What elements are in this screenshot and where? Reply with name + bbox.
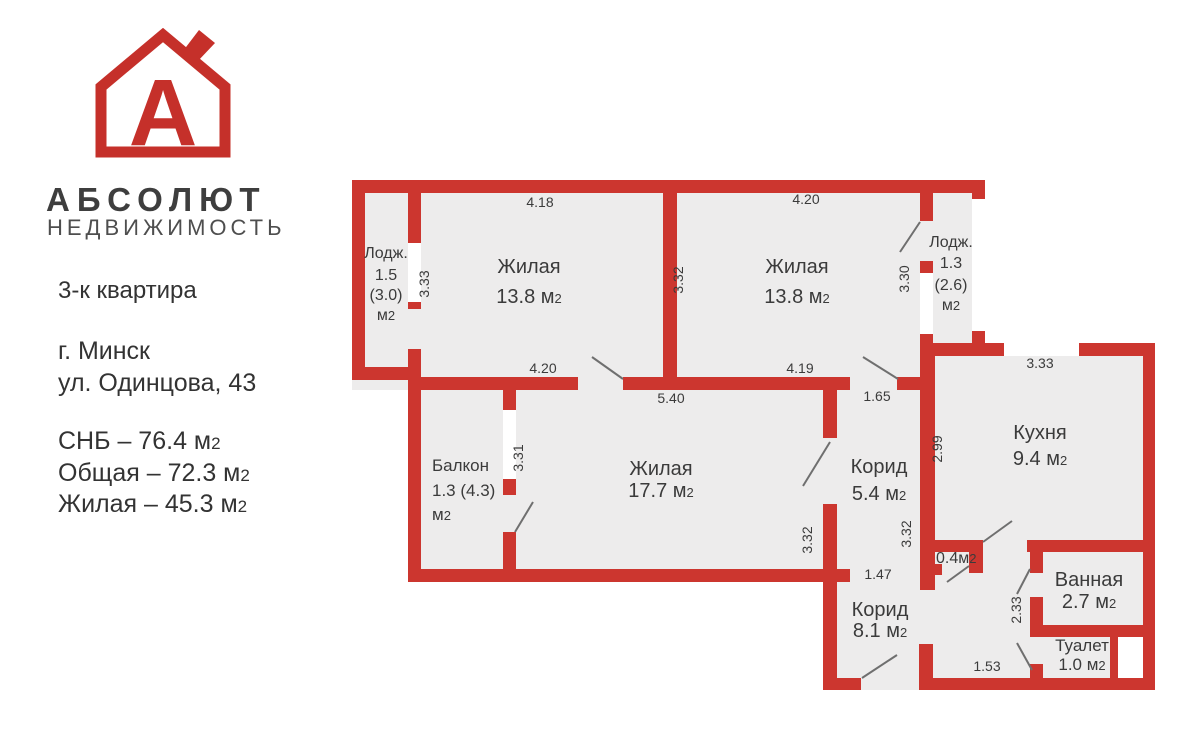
wall-bathroom-left-a <box>1030 552 1043 573</box>
label-loggia-right-unit: м2 <box>942 297 960 314</box>
wall-right-outer <box>1143 343 1155 690</box>
label-loggia-right-1: Лодж. <box>929 234 973 251</box>
dim-kitchen-left-height: 2.99 <box>929 435 945 462</box>
dim-room2-right-height: 3.30 <box>896 265 912 292</box>
label-loggia-right-unit-m: м <box>942 297 953 314</box>
label-corridor1-area-2: 2 <box>899 488 906 503</box>
dim-corridor1-top: 1.65 <box>863 388 890 404</box>
label-room2-area: 13.8 м2 <box>764 286 829 308</box>
label-toilet-area: 1.0 м2 <box>1058 655 1105 674</box>
dim-bathroom-height: 2.33 <box>1008 596 1024 623</box>
label-bathroom-area-2: 2 <box>1109 596 1116 611</box>
wall-room1-bottom-a <box>408 377 578 390</box>
dim-balcony-height: 3.31 <box>510 444 526 471</box>
label-loggia-left-3: (3.0) <box>370 287 403 304</box>
wall-loggia-right-outer-top <box>972 180 985 199</box>
label-room3-area-2: 2 <box>687 485 694 500</box>
wall-room3-right-bottom <box>823 504 837 690</box>
dim-rooms-mid-height: 3.32 <box>670 266 686 293</box>
wall-balcony-sill <box>503 479 516 495</box>
dim-room3-top: 5.40 <box>657 390 684 406</box>
wall-loggia-right-partition-top <box>920 180 933 221</box>
label-closet-area-value: 0.4м <box>936 550 969 567</box>
dim-room1-bottom: 4.20 <box>529 360 556 376</box>
label-corridor1-area-value: 5.4 м <box>852 483 899 505</box>
label-closet-area-2: 2 <box>969 551 976 566</box>
label-loggia-right-unit-2: 2 <box>953 298 960 313</box>
label-room2-area-value: 13.8 м <box>764 286 822 308</box>
window-loggia-right-outer <box>972 199 985 331</box>
wall-niche-left <box>1110 637 1118 678</box>
label-bathroom-area: 2.7 м2 <box>1062 591 1116 613</box>
label-room2-area-2: 2 <box>823 291 830 306</box>
label-room3-name: Жилая <box>629 458 692 480</box>
label-kitchen-area-2: 2 <box>1060 453 1067 468</box>
label-closet-area: 0.4м2 <box>936 550 976 567</box>
wall-loggia-left-sill <box>408 302 421 309</box>
label-room1-area: 13.8 м2 <box>496 286 561 308</box>
label-toilet-area-value: 1.0 м <box>1058 655 1098 674</box>
label-room3-area-value: 17.7 м <box>628 480 686 502</box>
label-kitchen-area: 9.4 м2 <box>1013 448 1067 470</box>
wall-room1-bottom-b <box>623 377 850 390</box>
label-kitchen-name: Кухня <box>1013 422 1067 444</box>
label-corridor1-area: 5.4 м2 <box>852 483 906 505</box>
wall-mid-left-outer <box>408 380 421 582</box>
label-toilet-area-2: 2 <box>1098 658 1105 673</box>
label-loggia-right-2: 1.3 <box>940 255 962 272</box>
label-room1-area-value: 13.8 м <box>496 286 554 308</box>
label-room2-name: Жилая <box>765 256 828 278</box>
wall-mid-bottom <box>408 569 850 582</box>
wall-balcony-partition-top <box>503 389 516 410</box>
label-corridor2-area-2: 2 <box>900 625 907 640</box>
label-room1-name: Жилая <box>497 256 560 278</box>
dim-room3-right-height: 3.32 <box>799 526 815 553</box>
label-bathroom-name: Ванная <box>1055 569 1124 591</box>
wall-bottom-outer-b <box>919 678 1155 690</box>
wall-loggia-right-sill <box>920 261 933 273</box>
dim-loggia-left-height: 3.33 <box>416 270 432 297</box>
dim-room2-bottom: 4.19 <box>786 360 813 376</box>
label-corridor2-name: Корид <box>852 599 909 621</box>
label-balcony-unit-2: 2 <box>444 508 451 523</box>
wall-loggia-left-partition-top <box>408 180 421 243</box>
floor-plan: Лодж. 1.5 (3.0) м2 Жилая 13.8 м2 Жилая 1… <box>0 0 1199 729</box>
wall-loggia-left-partition-bottom <box>408 349 421 380</box>
label-balcony-2: 1.3 (4.3) <box>432 481 495 500</box>
dim-corridor1-bottom: 1.47 <box>864 566 891 582</box>
window-loggia-right-inner <box>920 273 933 334</box>
label-room1-area-2: 2 <box>555 291 562 306</box>
label-corridor2-area-value: 8.1 м <box>853 620 900 642</box>
dim-room2-top: 4.20 <box>792 191 819 207</box>
label-balcony-unit-m: м <box>432 505 444 524</box>
label-corridor1-name: Корид <box>851 456 908 478</box>
label-kitchen-area-value: 9.4 м <box>1013 448 1060 470</box>
wall-left-outer <box>352 180 365 380</box>
label-loggia-left-2: 1.5 <box>375 267 397 284</box>
label-loggia-right-3: (2.6) <box>935 277 968 294</box>
wall-balcony-partition-bottom <box>503 532 516 569</box>
label-loggia-left-unit-2: 2 <box>388 308 395 323</box>
label-balcony-unit: м2 <box>432 505 451 524</box>
wall-kitchen-left <box>920 343 935 590</box>
label-corridor2-area: 8.1 м2 <box>853 620 907 642</box>
niche-shaft <box>1118 637 1143 678</box>
wall-entrance-stub <box>919 644 933 690</box>
label-toilet-name: Туалет <box>1055 636 1109 655</box>
wall-room3-right-top <box>823 389 837 438</box>
label-bathroom-area-value: 2.7 м <box>1062 591 1109 613</box>
dim-kitchen-top: 3.33 <box>1026 355 1053 371</box>
label-loggia-left-unit: м2 <box>377 307 395 324</box>
dim-corridor1-right-height: 3.32 <box>898 520 914 547</box>
wall-bottom-outer-a <box>823 678 861 690</box>
dim-hall-bottom: 1.53 <box>973 658 1000 674</box>
label-loggia-left-1: Лодж. <box>364 245 408 262</box>
wall-room2-bottom-b <box>897 377 921 390</box>
label-balcony-1: Балкон <box>432 456 489 475</box>
flyer: А АБСОЛЮТ НЕДВИЖИМОСТЬ 3-к квартира г. М… <box>0 0 1199 729</box>
dim-room1-top: 4.18 <box>526 194 553 210</box>
wall-kitchen-top-a <box>920 343 1004 356</box>
wall-bathroom-top <box>1027 540 1155 552</box>
label-room3-area: 17.7 м2 <box>628 480 693 502</box>
label-loggia-left-unit-m: м <box>377 307 388 324</box>
